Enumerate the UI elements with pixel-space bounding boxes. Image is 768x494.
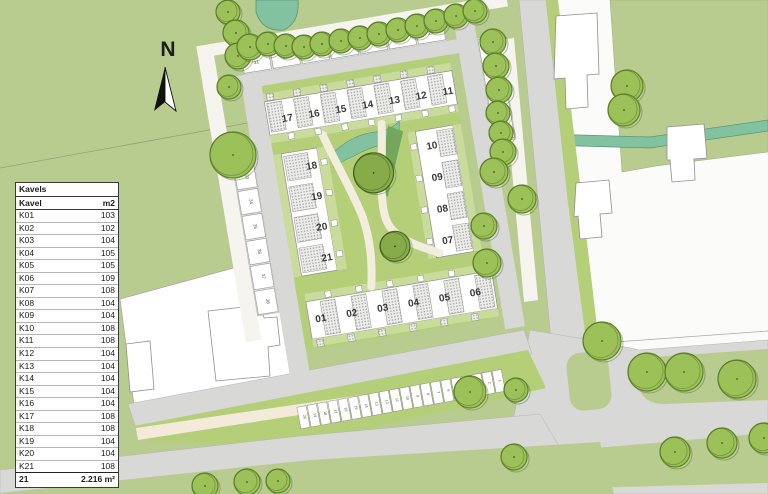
kavel-area: 108 (101, 411, 115, 423)
house-number: 21 (321, 252, 334, 265)
tree-center (736, 378, 738, 380)
shed (422, 110, 429, 117)
house-number: 19 (310, 191, 323, 204)
house-number: 12 (415, 90, 428, 103)
kavel-area: 103 (101, 210, 115, 222)
kavel-area: 104 (101, 348, 115, 360)
table-row: K11 108 (16, 335, 118, 348)
table-row: K12 104 (16, 348, 118, 361)
shed (400, 70, 408, 78)
house-number: 17 (281, 112, 294, 125)
kavel-area: 104 (101, 448, 115, 460)
tree-center (486, 262, 488, 264)
tree-center (626, 85, 628, 87)
house-number: 07 (441, 235, 454, 248)
tree-center (359, 37, 361, 39)
kavel-id: K19 (19, 436, 34, 448)
shed (321, 158, 328, 165)
shed (395, 115, 402, 122)
table-row: K18 108 (16, 423, 118, 436)
tree-center (483, 225, 485, 227)
table-row: K03 104 (16, 235, 118, 248)
table-row: K20 104 (16, 448, 118, 461)
kavel-id: K03 (19, 235, 34, 247)
tree-center (267, 43, 269, 45)
tree-center (502, 151, 504, 153)
tree-center (763, 437, 765, 439)
shed (426, 238, 433, 245)
kavel-id: K09 (19, 310, 34, 322)
parking-number: 15 (354, 405, 359, 410)
kavel-area: 108 (101, 323, 115, 335)
kavel-id: K12 (19, 348, 34, 360)
tree-center (204, 485, 206, 487)
house-number: 13 (388, 95, 401, 108)
tree-center (721, 442, 723, 444)
kavel-area: 105 (101, 248, 115, 260)
tree-center (683, 371, 685, 373)
tree-center (521, 198, 523, 200)
tree-center (321, 43, 323, 45)
shed (316, 339, 324, 347)
shed (346, 79, 354, 87)
kavel-area: 104 (101, 310, 115, 322)
kavel-area: 104 (101, 235, 115, 247)
table-body: K01 103 K02 102 K03 104 K04 105 K05 105 … (16, 210, 118, 472)
tree-center (495, 65, 497, 67)
total-count: 21 (19, 473, 28, 487)
tree-center (492, 41, 494, 43)
tree-center (435, 20, 437, 22)
tree-center (474, 10, 476, 12)
kavel-area: 104 (101, 361, 115, 373)
table-row: K06 109 (16, 273, 118, 286)
kavel-area: 102 (101, 223, 115, 235)
kavel-area: 104 (101, 398, 115, 410)
kavel-id: K13 (19, 361, 34, 373)
tree-center (235, 32, 237, 34)
table-row: K01 103 (16, 210, 118, 223)
shed (409, 323, 417, 331)
tree-center (237, 55, 239, 57)
table-row: K09 104 (16, 310, 118, 323)
kavel-id: K11 (19, 335, 34, 347)
shed (421, 207, 428, 214)
shed (326, 189, 333, 196)
north-label: N (160, 38, 175, 61)
tree-center (623, 109, 625, 111)
parking-number: 13 (374, 401, 379, 406)
kavel-area: 105 (101, 260, 115, 272)
table-row: K17 108 (16, 411, 118, 424)
parking-number: 18 (323, 411, 328, 416)
tree-center (455, 15, 457, 17)
tree-center (416, 25, 418, 27)
shed (417, 275, 424, 282)
tree-center (285, 45, 287, 47)
shed (427, 66, 435, 74)
kavel-id: K04 (19, 248, 34, 260)
kavel-area: 108 (101, 461, 115, 473)
kavel-id: K01 (19, 210, 34, 222)
parking-number: 19 (312, 413, 317, 418)
kavels-table: Kavels Kavel m2 K01 103 K02 102 K03 104 … (15, 182, 119, 488)
tree-center (500, 132, 502, 134)
site-plan-viewport: 1716151413121118192021100908070102030405… (0, 0, 768, 494)
shed (331, 220, 338, 227)
shed (293, 88, 301, 96)
kavel-area: 108 (101, 335, 115, 347)
shed (416, 175, 423, 182)
kavel-id: K20 (19, 448, 34, 460)
tree-center (497, 112, 499, 114)
tree-center (513, 456, 515, 458)
tree-center (303, 46, 305, 48)
kavel-id: K16 (19, 398, 34, 410)
kavel-area: 109 (101, 273, 115, 285)
table-row: K05 105 (16, 260, 118, 273)
shed (449, 106, 456, 113)
kavel-id: K17 (19, 411, 34, 423)
tree-center (227, 11, 229, 13)
shed (325, 291, 332, 298)
parking-number: 11 (395, 398, 400, 403)
column-header-kavel: Kavel (19, 197, 42, 210)
shed (320, 84, 328, 92)
kavel-area: 108 (101, 285, 115, 297)
tree-center (340, 40, 342, 42)
kavel-id: K14 (19, 373, 34, 385)
total-area: 2.216 m² (81, 473, 115, 487)
shed (347, 334, 355, 342)
tree-center (515, 389, 517, 391)
shed (315, 128, 322, 135)
shed (471, 313, 479, 321)
tree-center (249, 46, 251, 48)
house-number: 06 (469, 287, 482, 300)
table-row: K19 104 (16, 436, 118, 449)
table-header: Kavel m2 (16, 197, 118, 211)
tree-center (493, 171, 495, 173)
shed (355, 285, 362, 292)
table-row: K21 108 (16, 461, 118, 473)
table-row: K07 108 (16, 285, 118, 298)
tree-center (246, 481, 248, 483)
house-number: 04 (407, 297, 420, 310)
tree-center (674, 451, 676, 453)
tree-center (469, 391, 471, 393)
shed (448, 270, 455, 277)
house-number: 08 (436, 203, 449, 216)
kavel-area: 104 (101, 386, 115, 398)
tree-center (498, 89, 500, 91)
kavel-id: K10 (19, 323, 34, 335)
tree-center (601, 340, 603, 342)
shed (336, 250, 343, 257)
existing-building (126, 341, 154, 392)
shed (373, 75, 381, 83)
table-row: K16 104 (16, 398, 118, 411)
kavel-id: K05 (19, 260, 34, 272)
house-number: 15 (335, 103, 348, 116)
shed (378, 329, 386, 337)
kavel-area: 104 (101, 373, 115, 385)
kavel-area: 108 (101, 423, 115, 435)
house-number: 03 (376, 302, 389, 315)
house-number: 16 (308, 108, 321, 121)
tree-center (228, 86, 230, 88)
house-number: 14 (361, 99, 374, 112)
shed (341, 124, 348, 131)
shed (386, 280, 393, 287)
kavel-id: K07 (19, 285, 34, 297)
shed (440, 318, 448, 326)
parking-number: 16 (343, 407, 348, 412)
tree-center (232, 154, 234, 156)
house-number: 09 (431, 172, 444, 185)
house-number: 10 (426, 140, 439, 153)
kavel-id: K18 (19, 423, 34, 435)
shed (410, 143, 417, 150)
table-row: K08 104 (16, 298, 118, 311)
parking-number: 12 (384, 399, 389, 404)
parking-number: 17 (333, 409, 338, 414)
tree-center (397, 29, 399, 31)
kavel-id: K08 (19, 298, 34, 310)
parking-number: 14 (364, 403, 369, 408)
shed (288, 132, 295, 139)
table-row: K02 102 (16, 223, 118, 236)
kavel-id: K21 (19, 461, 34, 473)
shed (368, 119, 375, 126)
kavel-area: 104 (101, 436, 115, 448)
house-number: 18 (305, 160, 318, 173)
tree-center (378, 33, 380, 35)
house-number: 02 (346, 307, 359, 320)
parking-number: 10 (405, 396, 410, 401)
table-row: K10 108 (16, 323, 118, 336)
kavel-area: 104 (101, 298, 115, 310)
house-number: 05 (438, 292, 451, 305)
kavel-id: K06 (19, 273, 34, 285)
column-header-m2: m2 (103, 197, 115, 210)
tree-center (646, 371, 648, 373)
kavel-id: K15 (19, 386, 34, 398)
table-row: K15 104 (16, 386, 118, 399)
tree-center (277, 480, 279, 482)
house-number: 01 (315, 313, 328, 326)
table-total-row: 21 2.216 m² (16, 472, 118, 487)
table-row: K13 104 (16, 361, 118, 374)
table-row: K14 104 (16, 373, 118, 386)
shed (266, 93, 274, 101)
parking-number: 20 (302, 415, 307, 420)
table-row: K04 105 (16, 248, 118, 261)
house-number: 20 (316, 221, 329, 234)
kavel-id: K02 (19, 223, 34, 235)
table-title: Kavels (16, 183, 118, 197)
